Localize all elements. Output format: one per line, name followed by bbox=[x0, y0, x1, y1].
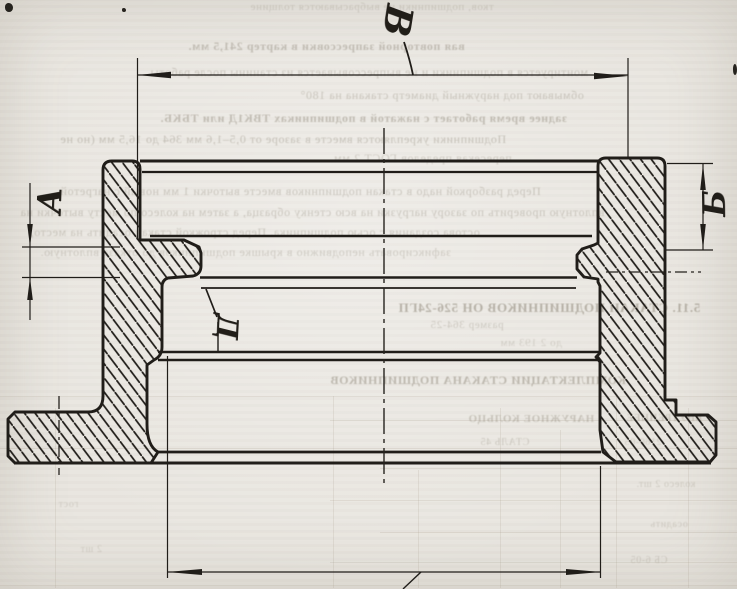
arrowhead-right bbox=[594, 73, 628, 79]
leader-v bbox=[404, 42, 413, 75]
arrowhead-left bbox=[167, 569, 202, 575]
section-label-b: Б bbox=[700, 190, 731, 217]
dimension-top bbox=[137, 42, 628, 240]
part-section-right bbox=[577, 158, 716, 462]
arrowhead-down bbox=[700, 224, 706, 250]
scanned-drawing-page: тков, подшипники не выбрасываются толщин… bbox=[0, 0, 737, 589]
arrowhead-right bbox=[566, 569, 601, 575]
section-label-d: Д bbox=[212, 313, 242, 340]
leader-cutoff bbox=[403, 572, 421, 589]
arrowhead-down bbox=[27, 224, 33, 247]
arrowhead-left bbox=[137, 72, 171, 78]
section-label-a: А bbox=[32, 186, 66, 214]
section-label-v: В bbox=[377, 2, 418, 39]
arrowhead-up bbox=[700, 164, 706, 190]
section-drawing bbox=[0, 0, 737, 589]
arrowhead-up bbox=[27, 278, 33, 301]
